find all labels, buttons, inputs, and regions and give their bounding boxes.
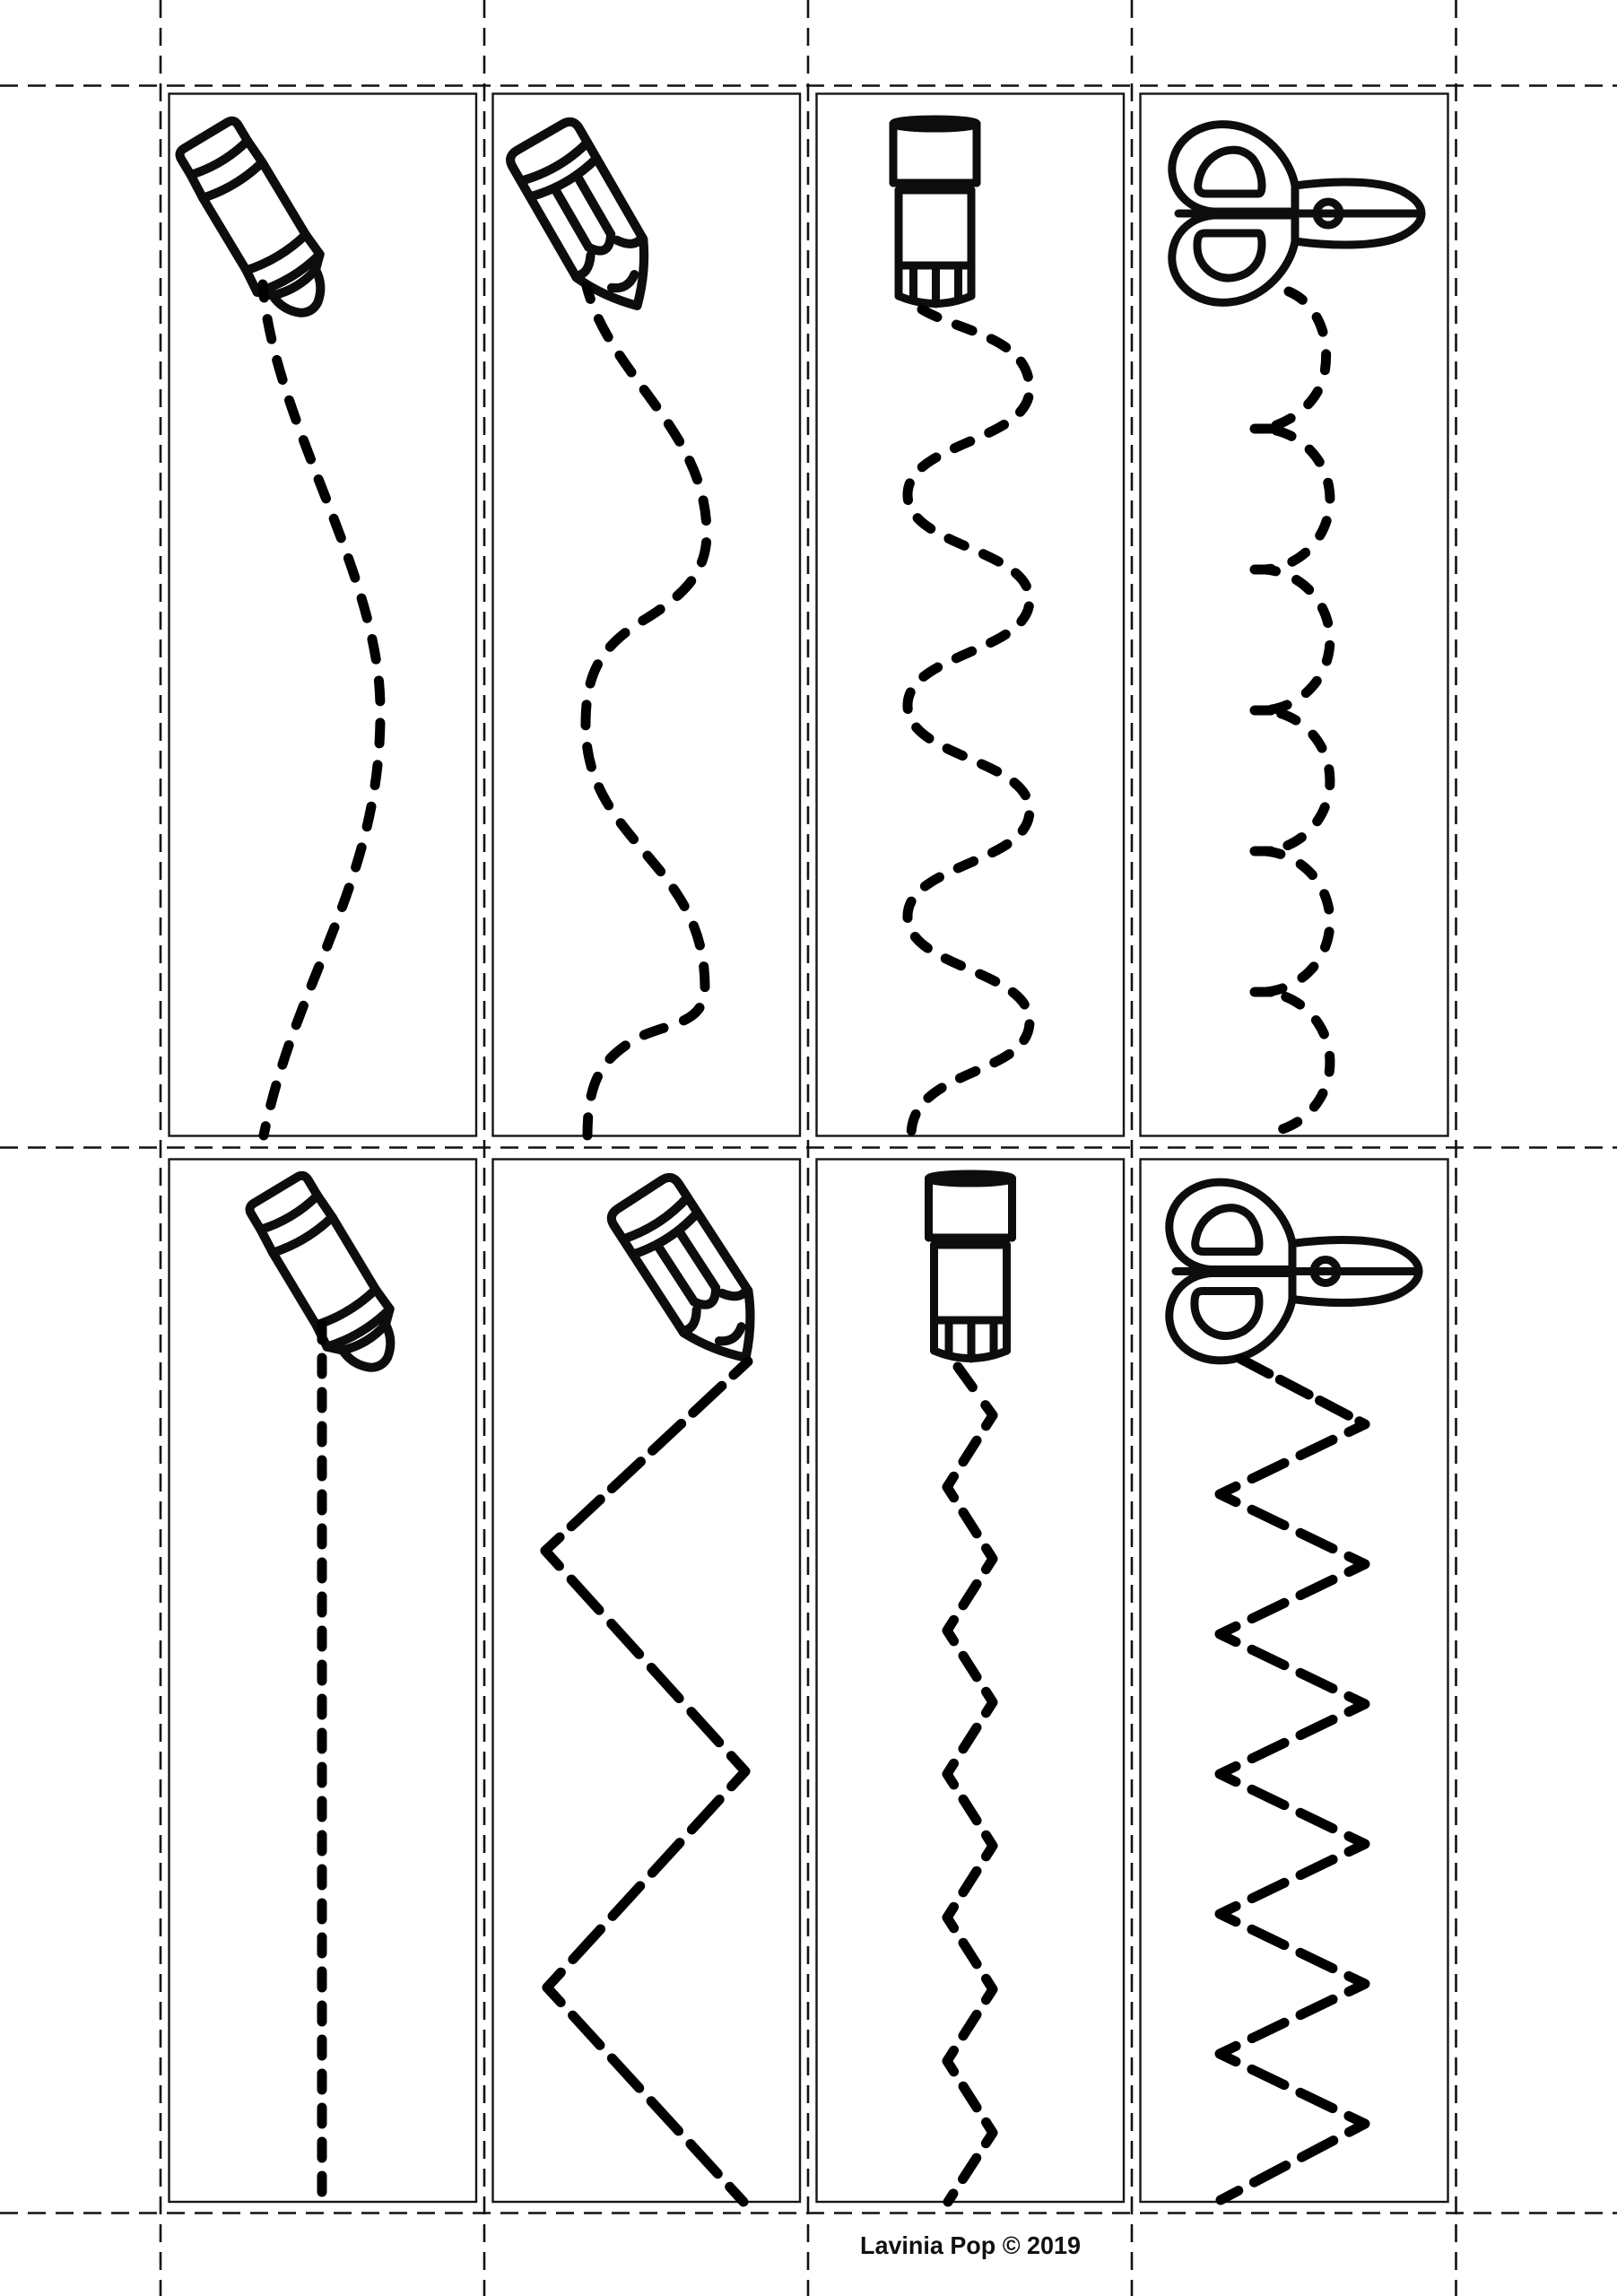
svg-text:Lavinia Pop © 2019: Lavinia Pop © 2019 [860, 2231, 1081, 2259]
